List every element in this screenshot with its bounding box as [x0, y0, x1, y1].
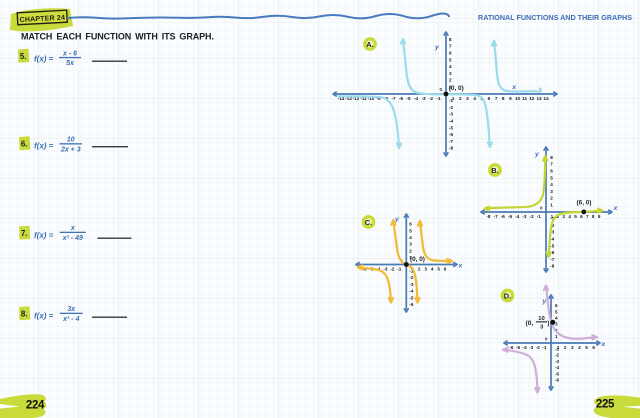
svg-text:8: 8	[592, 214, 595, 219]
svg-text:3: 3	[466, 96, 469, 101]
svg-text:3: 3	[424, 267, 427, 272]
svg-text:-2: -2	[409, 275, 414, 280]
svg-text:-1: -1	[436, 96, 441, 101]
svg-text:4: 4	[473, 96, 476, 101]
svg-text:5: 5	[574, 214, 577, 219]
svg-text:A.: A.	[366, 40, 374, 49]
svg-text:f(x) =: f(x) =	[34, 312, 54, 321]
svg-text:5: 5	[585, 345, 588, 350]
svg-text:-7: -7	[391, 96, 396, 101]
svg-text:-5: -5	[449, 125, 454, 130]
svg-text:-1: -1	[537, 214, 542, 219]
svg-text:4: 4	[555, 316, 558, 321]
svg-text:6: 6	[444, 267, 447, 272]
svg-text:4: 4	[550, 182, 553, 187]
svg-text:10: 10	[67, 137, 75, 144]
svg-text:-5: -5	[550, 243, 555, 248]
svg-text:5: 5	[555, 309, 558, 314]
svg-text:-3: -3	[555, 359, 560, 364]
svg-text:6: 6	[592, 345, 595, 350]
svg-text:-5: -5	[406, 96, 411, 101]
svg-text:224: 224	[26, 400, 45, 412]
svg-text:3: 3	[555, 322, 558, 327]
svg-text:5.: 5.	[20, 52, 27, 61]
svg-text:5: 5	[437, 267, 440, 272]
svg-text:-6: -6	[501, 214, 506, 219]
svg-text:RATIONAL FUNCTIONS AND THEIR G: RATIONAL FUNCTIONS AND THEIR GRAPHS	[478, 13, 632, 22]
svg-text:3x: 3x	[67, 306, 76, 313]
svg-text:7: 7	[550, 162, 553, 167]
svg-text:2: 2	[564, 345, 567, 350]
svg-text:-7: -7	[550, 257, 555, 262]
svg-text:7: 7	[449, 44, 452, 49]
svg-text:12: 12	[529, 96, 535, 101]
svg-text:-4: -4	[409, 289, 414, 294]
svg-text:-2: -2	[429, 96, 434, 101]
svg-text:-1: -1	[555, 347, 560, 352]
svg-text:f(x) =: f(x) =	[34, 142, 54, 151]
svg-text:6.: 6.	[21, 140, 28, 149]
svg-text:1: 1	[555, 334, 558, 339]
svg-text:2: 2	[550, 196, 553, 201]
svg-text:4: 4	[449, 64, 452, 69]
svg-text:5: 5	[409, 228, 412, 233]
svg-text:f(x) =: f(x) =	[34, 231, 54, 240]
svg-text:3: 3	[571, 345, 574, 350]
svg-text:-6: -6	[555, 378, 560, 383]
svg-text:4: 4	[409, 235, 412, 240]
svg-text:-2: -2	[536, 345, 541, 350]
svg-text:-5: -5	[555, 371, 560, 376]
svg-text:9: 9	[509, 96, 512, 101]
svg-text:6: 6	[580, 214, 583, 219]
svg-text:D.: D.	[504, 291, 512, 300]
svg-text:-5: -5	[516, 345, 521, 350]
svg-text:-4: -4	[555, 365, 560, 370]
svg-text:10: 10	[515, 96, 521, 101]
svg-text:-1: -1	[449, 98, 454, 103]
svg-text:6: 6	[488, 96, 491, 101]
svg-text:x² - 49: x² - 49	[62, 235, 83, 242]
svg-text:1: 1	[550, 203, 553, 208]
svg-text:2: 2	[449, 78, 452, 83]
svg-text:13: 13	[536, 96, 542, 101]
svg-text:-8: -8	[449, 146, 454, 151]
svg-text:5: 5	[550, 175, 553, 180]
svg-text:2: 2	[409, 248, 412, 253]
svg-text:-7: -7	[494, 214, 499, 219]
svg-text:x² - 4: x² - 4	[62, 316, 79, 323]
svg-text:-3: -3	[409, 282, 414, 287]
svg-text:-8: -8	[486, 214, 491, 219]
svg-text:-3: -3	[383, 267, 388, 272]
svg-text:f(x) =: f(x) =	[34, 55, 54, 64]
svg-text:2x + 3: 2x + 3	[60, 146, 81, 153]
svg-text:4: 4	[578, 345, 581, 350]
svg-text:8: 8	[449, 37, 452, 42]
svg-text:-4: -4	[523, 345, 528, 350]
svg-text:2: 2	[459, 96, 462, 101]
svg-text:6: 6	[555, 303, 558, 308]
svg-text:3: 3	[449, 71, 452, 76]
svg-text:-3: -3	[449, 112, 454, 117]
svg-text:2: 2	[418, 267, 421, 272]
svg-text:14: 14	[544, 96, 550, 101]
svg-text:C.: C.	[365, 218, 373, 227]
svg-text:-1: -1	[397, 267, 402, 272]
svg-text:): )	[547, 320, 549, 327]
svg-text:3: 3	[409, 242, 412, 247]
svg-text:11: 11	[522, 96, 527, 101]
svg-text:6: 6	[550, 169, 553, 174]
svg-text:4: 4	[431, 267, 434, 272]
svg-text:-2: -2	[390, 267, 395, 272]
svg-text:-6: -6	[409, 302, 414, 307]
svg-text:(0,: (0,	[526, 320, 534, 327]
svg-text:7: 7	[586, 214, 589, 219]
svg-text:MATCH EACH FUNCTION WITH ITS G: MATCH EACH FUNCTION WITH ITS GRAPH.	[21, 32, 214, 42]
svg-text:(0, 0): (0, 0)	[410, 256, 425, 263]
svg-text:3: 3	[562, 214, 565, 219]
svg-text:-6: -6	[399, 96, 404, 101]
svg-text:-6: -6	[449, 132, 454, 137]
svg-text:5: 5	[449, 57, 452, 62]
svg-text:-2: -2	[530, 214, 535, 219]
svg-text:-3: -3	[529, 345, 534, 350]
svg-text:-2: -2	[449, 105, 454, 110]
svg-text:-2: -2	[555, 353, 560, 358]
svg-text:7: 7	[495, 96, 498, 101]
svg-text:8.: 8.	[21, 310, 28, 319]
svg-text:4: 4	[568, 214, 571, 219]
svg-text:-3: -3	[421, 96, 426, 101]
svg-text:-3: -3	[522, 214, 527, 219]
svg-text:-7: -7	[449, 139, 454, 144]
svg-text:8: 8	[502, 96, 505, 101]
svg-text:-4: -4	[414, 96, 419, 101]
svg-text:(0, 0): (0, 0)	[449, 85, 464, 92]
svg-text:5x: 5x	[66, 60, 75, 67]
svg-text:-8: -8	[550, 264, 555, 269]
svg-text:-4: -4	[449, 119, 454, 124]
svg-text:-5: -5	[409, 295, 414, 300]
svg-text:7.: 7.	[21, 229, 28, 238]
svg-text:9: 9	[598, 214, 601, 219]
svg-text:3: 3	[550, 189, 553, 194]
svg-text:-5: -5	[508, 214, 513, 219]
svg-text:6: 6	[449, 51, 452, 56]
svg-text:B.: B.	[491, 166, 499, 175]
svg-text:8: 8	[550, 155, 553, 160]
svg-text:225: 225	[596, 399, 615, 411]
svg-text:-4: -4	[515, 214, 520, 219]
svg-text:(6, 0): (6, 0)	[577, 200, 592, 207]
svg-text:6: 6	[409, 222, 412, 227]
svg-text:x - 6: x - 6	[62, 50, 77, 57]
svg-text:-1: -1	[542, 345, 547, 350]
